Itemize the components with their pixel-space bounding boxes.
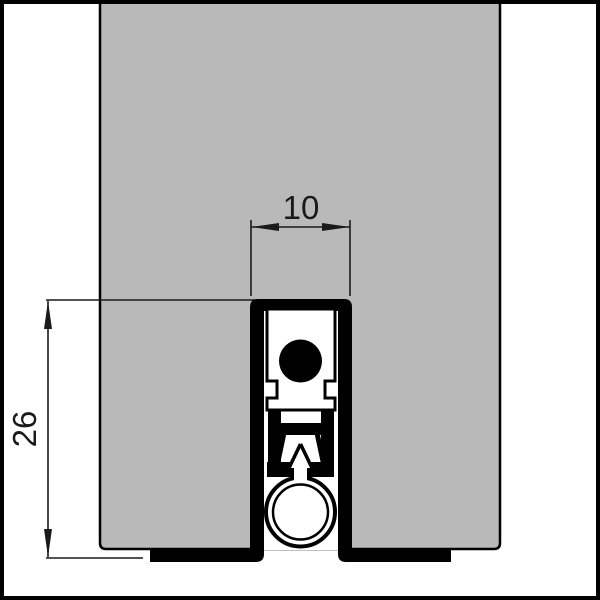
technical-drawing-page: 26 10: [0, 0, 600, 600]
height-dim-label: 26: [6, 411, 43, 448]
tube-seal-inner-ring: [273, 485, 328, 540]
door-seal-cross-section-drawing: 26 10: [0, 0, 600, 600]
locking-screw-icon: [279, 340, 322, 383]
width-dim-label: 10: [283, 189, 320, 226]
